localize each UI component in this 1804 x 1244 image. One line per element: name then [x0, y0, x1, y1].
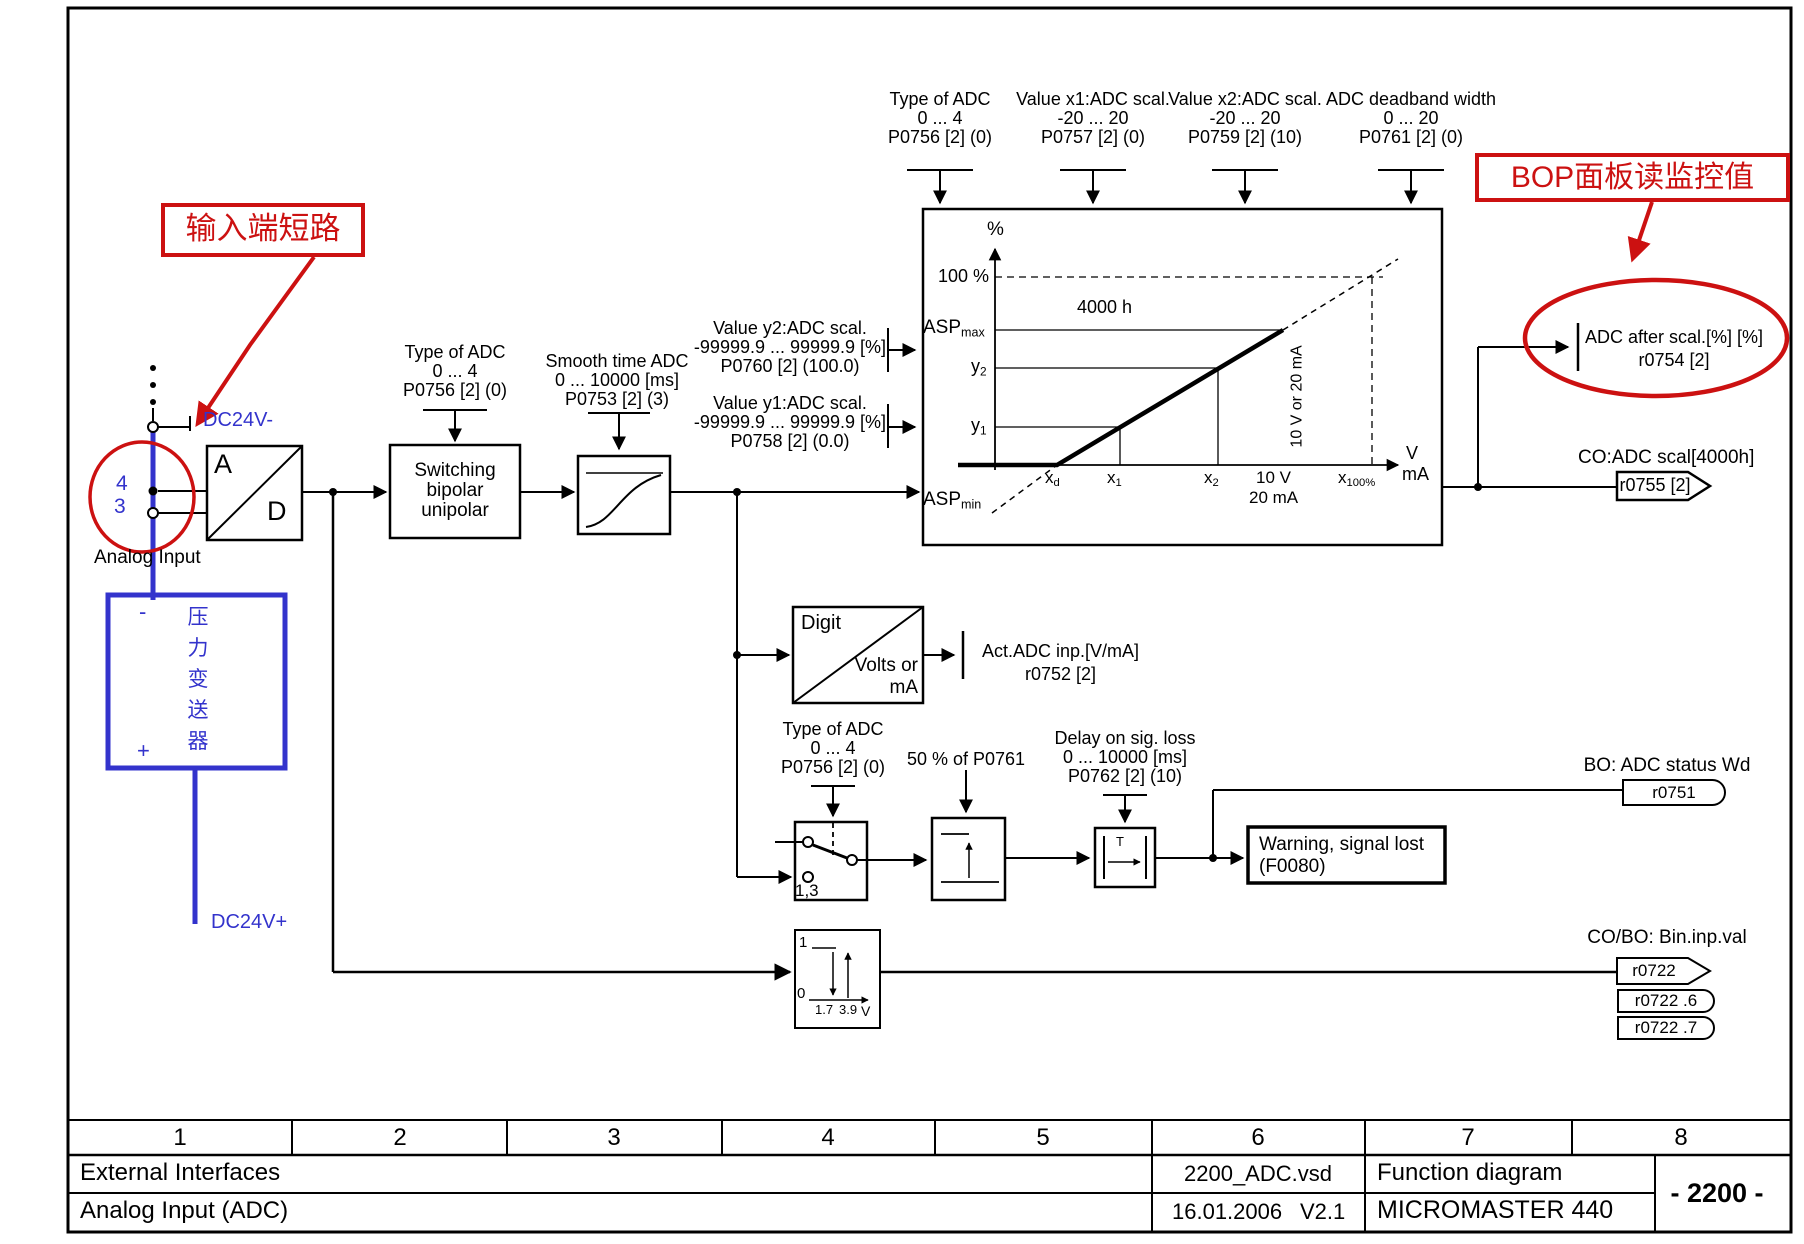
hysteresis-block [932, 770, 1089, 900]
warning-line1: Warning, signal lost [1259, 834, 1424, 856]
warning-line2: (F0080) [1259, 856, 1326, 878]
graph-4000h-label: 4000 h [1077, 297, 1132, 318]
delay-t-label: T [1116, 834, 1124, 849]
titleblock-col-4: 4 [798, 1124, 858, 1152]
binary-one-label: 1 [799, 934, 807, 952]
dc24v-minus-label: DC24V- [203, 409, 273, 433]
binary-t1-label: 1.7 [815, 1002, 833, 1017]
bop-monitor-annotation: BOP面板读监控值 [1477, 160, 1788, 195]
graph-x1-label: x1 [1107, 468, 1122, 490]
graph-percent-axis-label: % [987, 219, 1004, 241]
transmitter-plus: + [137, 738, 150, 764]
titleblock-col-1: 1 [150, 1124, 210, 1152]
r0751-output-box: r0751 [1622, 779, 1726, 806]
binary-v-label: V [861, 1003, 870, 1020]
titleblock-page-number: - 2200 - [1643, 1178, 1791, 1210]
graph-y2-label: y2 [971, 356, 987, 378]
short-circuit-annotation: 输入端短路 [163, 211, 363, 248]
switching-block-label: Switching bipolar unipolar [390, 461, 520, 521]
titleblock-col-8: 8 [1651, 1124, 1711, 1152]
titleblock-function-diagram: Function diagram [1377, 1159, 1562, 1187]
param-value-y1: Value y1:ADC scal. -99999.9 ... 99999.9 … [660, 394, 920, 451]
titleblock-col-3: 3 [584, 1124, 644, 1152]
co-adc-scal-label: CO:ADC scal[4000h] [1578, 447, 1753, 469]
graph-20ma-label: 20 mA [1249, 488, 1298, 508]
input-terminals [148, 365, 207, 518]
graph-10v-label: 10 V [1256, 468, 1291, 488]
terminal-3-label: 3 [114, 495, 126, 520]
digit-label: Digit [801, 612, 841, 636]
signal-lines [302, 445, 919, 972]
pressure-transmitter-label: 压 力 变 送 器 [186, 608, 210, 763]
terminal-4-label: 4 [116, 472, 128, 497]
titleblock-col-5: 5 [1013, 1124, 1073, 1152]
titleblock-product: MICROMASTER 440 [1377, 1196, 1613, 1226]
titleblock-col-6: 6 [1228, 1124, 1288, 1152]
graph-aspmax-label: ASPmax [923, 317, 985, 340]
titleblock-external-interfaces: External Interfaces [80, 1159, 280, 1187]
titleblock-col-7: 7 [1438, 1124, 1498, 1152]
adc-a-label: A [214, 449, 232, 481]
graph-x2-label: x2 [1204, 468, 1219, 490]
titleblock-date: 16.01.2006 [1172, 1199, 1282, 1225]
r0755-value: r0755 [2] [1617, 475, 1693, 496]
r0722-6-output-box: r0722 .6 [1617, 989, 1715, 1013]
volts-ma-label: mA [836, 677, 918, 699]
param-value-y2: Value y2:ADC scal. -99999.9 ... 99999.9 … [660, 319, 920, 376]
binary-t2-label: 3.9 [839, 1002, 857, 1017]
titleblock-filename: 2200_ADC.vsd [1162, 1161, 1354, 1187]
graph-range-rotated-label: 10 V or 20 mA [1289, 326, 1308, 466]
transmitter-minus: - [139, 599, 146, 625]
r0722-value: r0722 [1617, 961, 1691, 981]
dc24v-plus-label: DC24V+ [211, 911, 287, 935]
adc-d-label: D [267, 496, 287, 528]
graph-v-axis-label: V [1406, 443, 1418, 464]
graph-ma-axis-label: mA [1402, 464, 1429, 485]
volts-or-label: Volts or [836, 655, 918, 677]
bo-adc-status-label: BO: ADC status Wd [1567, 755, 1767, 777]
act-adc-output-label: Act.ADC inp.[V/mA] r0752 [2] [968, 640, 1153, 686]
analog-input-label: Analog Input [94, 547, 201, 569]
switch-pins-label: 1,3 [795, 881, 819, 901]
param-deadband: ADC deadband width 0 ... 20 P0761 [2] (0… [1301, 90, 1521, 147]
graph-y1-label: y1 [971, 415, 987, 437]
param-delay-sig-loss: Delay on sig. loss 0 ... 10000 [ms] P076… [1015, 729, 1235, 786]
graph-100pct-label: 100 % [933, 266, 989, 287]
graph-x100-label: x100% [1338, 468, 1375, 490]
titleblock-col-2: 2 [370, 1124, 430, 1152]
graph-aspmin-label: ASPmin [923, 489, 981, 512]
titleblock-analog-input-adc: Analog Input (ADC) [80, 1197, 288, 1225]
graph-xd-label: xd [1045, 468, 1060, 490]
r0722-7-output-box: r0722 .7 [1617, 1016, 1715, 1040]
binary-zero-label: 0 [797, 985, 805, 1003]
titleblock-version: V2.1 [1300, 1199, 1345, 1225]
adc-after-scal-label: ADC after scal.[%] [%] r0754 [2] [1574, 326, 1774, 372]
co-bo-bin-label: CO/BO: Bin.inp.val [1562, 927, 1772, 949]
function-diagram-page: Type of ADC 0 ... 4 P0756 [2] (0) Value … [0, 0, 1804, 1244]
